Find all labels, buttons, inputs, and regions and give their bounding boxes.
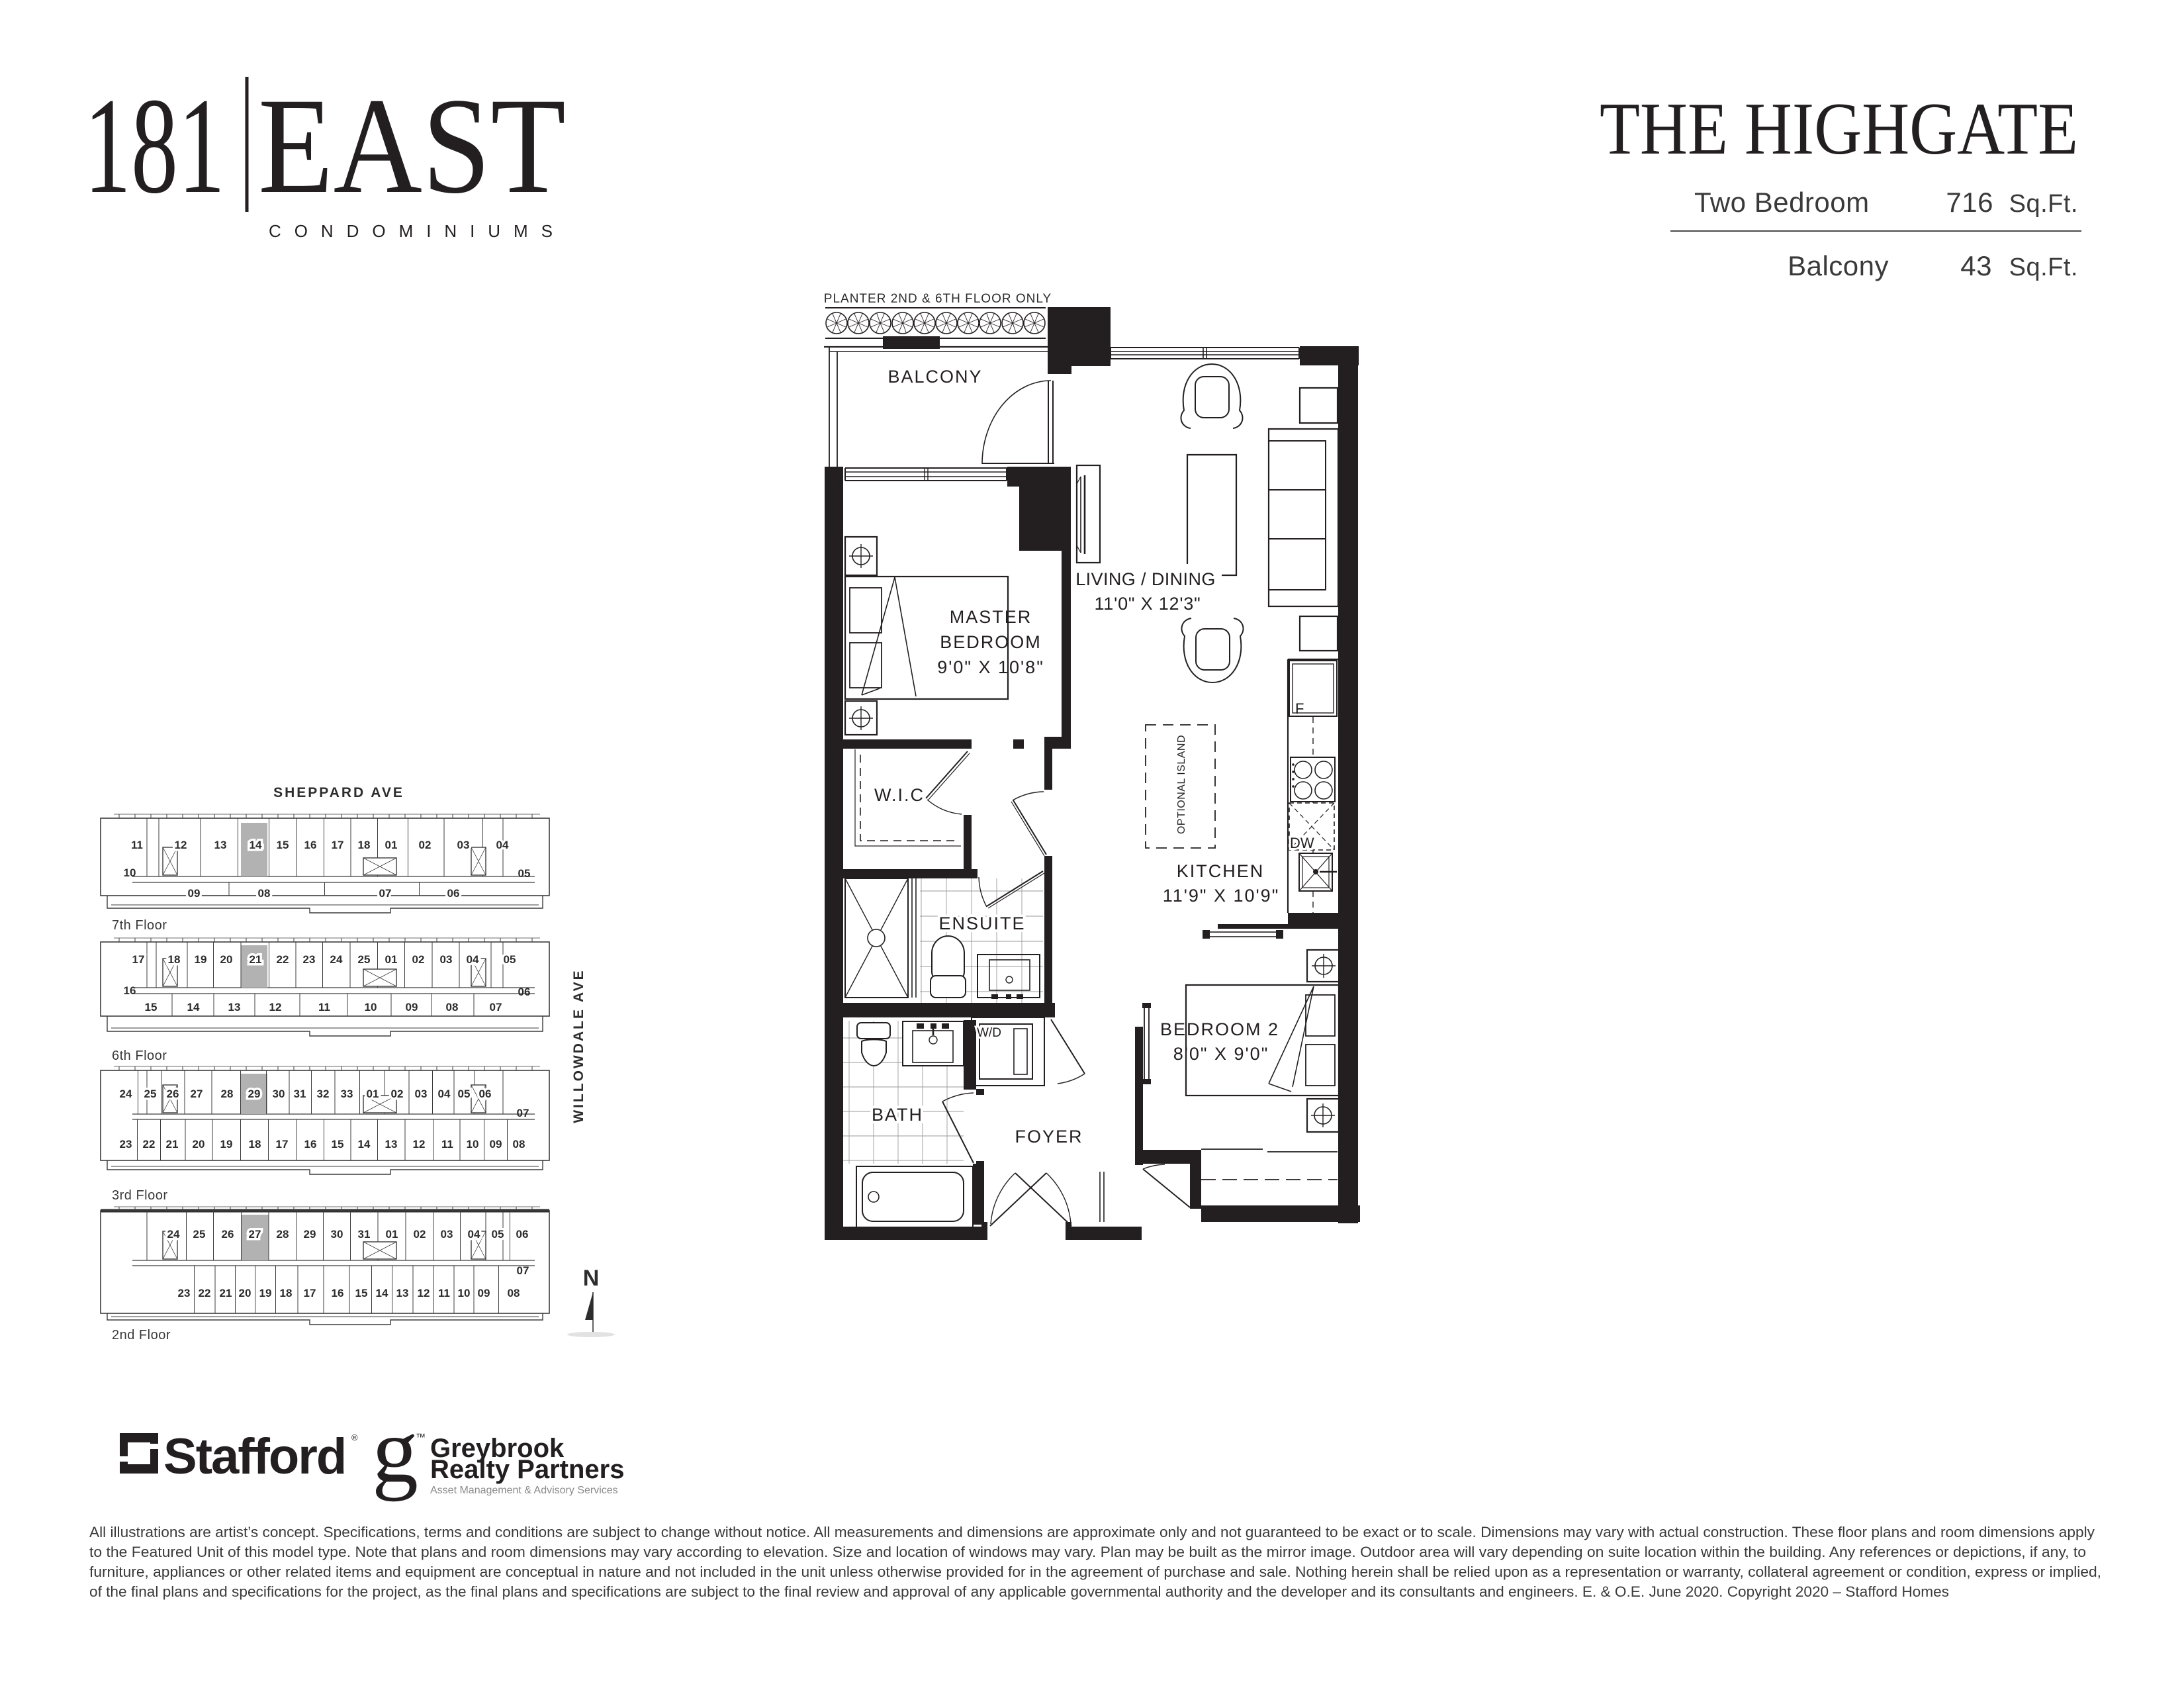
svg-text:32: 32 (317, 1088, 330, 1100)
svg-text:20: 20 (239, 1287, 251, 1299)
svg-text:23: 23 (120, 1138, 132, 1150)
svg-text:to the Featured Unit of this m: to the Featured Unit of this model type.… (89, 1544, 2086, 1560)
svg-text:6th Floor: 6th Floor (112, 1049, 167, 1063)
svg-text:23: 23 (178, 1287, 191, 1299)
svg-text:13: 13 (385, 1138, 398, 1150)
svg-text:SHEPPARD AVE: SHEPPARD AVE (273, 785, 404, 800)
svg-text:21: 21 (220, 1287, 232, 1299)
svg-text:07: 07 (517, 1107, 529, 1119)
svg-text:Sq.Ft.: Sq.Ft. (2009, 190, 2078, 218)
svg-text:28: 28 (277, 1228, 289, 1241)
svg-text:04: 04 (438, 1088, 451, 1100)
svg-text:23: 23 (303, 953, 316, 966)
svg-text:10: 10 (467, 1138, 479, 1150)
svg-text:05: 05 (458, 1088, 471, 1100)
svg-text:W.I.C: W.I.C (874, 785, 925, 805)
svg-text:14: 14 (376, 1287, 388, 1299)
svg-text:24: 24 (330, 953, 343, 966)
svg-text:26: 26 (167, 1088, 179, 1100)
svg-text:02: 02 (412, 953, 425, 966)
svg-text:Stafford: Stafford (163, 1429, 345, 1485)
svg-text:25: 25 (144, 1088, 157, 1100)
svg-text:17: 17 (332, 839, 344, 851)
svg-text:10: 10 (124, 867, 136, 879)
svg-text:10: 10 (458, 1287, 471, 1299)
svg-text:LIVING / DINING: LIVING / DINING (1075, 569, 1216, 589)
svg-text:08: 08 (513, 1138, 525, 1150)
svg-text:3rd Floor: 3rd Floor (112, 1188, 168, 1203)
svg-text:43: 43 (1960, 250, 1992, 281)
svg-text:08: 08 (446, 1001, 459, 1013)
svg-text:11: 11 (131, 839, 143, 851)
svg-text:®: ® (351, 1432, 358, 1442)
svg-text:01: 01 (386, 1228, 398, 1241)
svg-text:24: 24 (120, 1088, 132, 1100)
svg-text:™: ™ (416, 1432, 426, 1443)
svg-text:All illustrations are artist’s: All illustrations are artist’s concept. … (89, 1524, 2095, 1540)
svg-text:15: 15 (277, 839, 289, 851)
svg-text:THE HIGHGATE: THE HIGHGATE (1600, 88, 2078, 170)
svg-text:8'0" X 9'0": 8'0" X 9'0" (1173, 1044, 1269, 1064)
svg-text:N: N (583, 1266, 600, 1291)
svg-text:BATH: BATH (872, 1105, 923, 1125)
svg-text:16: 16 (332, 1287, 344, 1299)
svg-text:BEDROOM: BEDROOM (940, 632, 1042, 652)
svg-text:07: 07 (517, 1264, 529, 1277)
svg-text:14: 14 (250, 839, 262, 851)
svg-text:2nd Floor: 2nd Floor (112, 1328, 171, 1342)
svg-text:21: 21 (250, 953, 262, 966)
svg-text:12: 12 (413, 1138, 426, 1150)
svg-text:02: 02 (419, 839, 432, 851)
svg-text:BEDROOM 2: BEDROOM 2 (1160, 1019, 1279, 1039)
svg-text:18: 18 (280, 1287, 293, 1299)
svg-text:11: 11 (441, 1138, 453, 1150)
svg-text:06: 06 (479, 1088, 492, 1100)
svg-text:15: 15 (145, 1001, 158, 1013)
svg-text:11'0" X 12'3": 11'0" X 12'3" (1095, 594, 1201, 614)
svg-text:01: 01 (385, 953, 398, 966)
svg-text:13: 13 (228, 1001, 241, 1013)
svg-text:12: 12 (269, 1001, 282, 1013)
svg-text:17: 17 (304, 1287, 316, 1299)
svg-text:Asset Management & Advisory Se: Asset Management & Advisory Services (430, 1485, 618, 1496)
svg-text:F: F (1295, 700, 1304, 717)
svg-text:13: 13 (214, 839, 227, 851)
svg-text:19: 19 (220, 1138, 233, 1150)
svg-text:09: 09 (406, 1001, 418, 1013)
svg-text:30: 30 (331, 1228, 343, 1241)
svg-text:BALCONY: BALCONY (887, 367, 982, 387)
svg-text:03: 03 (415, 1088, 428, 1100)
svg-text:06: 06 (518, 986, 531, 998)
svg-text:31: 31 (358, 1228, 371, 1241)
svg-text:18: 18 (249, 1138, 261, 1150)
svg-text:26: 26 (222, 1228, 234, 1241)
svg-text:FOYER: FOYER (1015, 1127, 1083, 1147)
svg-text:15: 15 (332, 1138, 344, 1150)
svg-text:02: 02 (414, 1228, 426, 1241)
svg-text:22: 22 (199, 1287, 211, 1299)
svg-text:25: 25 (358, 953, 371, 966)
svg-text:11'9" X 10'9": 11'9" X 10'9" (1163, 886, 1280, 906)
svg-text:25: 25 (193, 1228, 206, 1241)
svg-text:30: 30 (273, 1088, 285, 1100)
svg-text:17: 17 (132, 953, 145, 966)
svg-text:716: 716 (1946, 187, 1993, 218)
svg-text:OPTIONAL ISLAND: OPTIONAL ISLAND (1176, 735, 1187, 834)
svg-text:05: 05 (492, 1228, 504, 1241)
svg-text:03: 03 (457, 839, 470, 851)
svg-text:07: 07 (379, 887, 392, 900)
svg-text:16: 16 (304, 839, 317, 851)
svg-text:20: 20 (220, 953, 233, 966)
svg-text:CONDOMINIUMS: CONDOMINIUMS (269, 221, 565, 241)
svg-text:W/D: W/D (977, 1026, 1001, 1040)
svg-text:19: 19 (259, 1287, 272, 1299)
svg-text:10: 10 (365, 1001, 377, 1013)
svg-text:01: 01 (367, 1088, 379, 1100)
svg-text:04: 04 (467, 953, 479, 966)
svg-text:08: 08 (258, 887, 271, 900)
svg-text:181: 181 (84, 70, 225, 222)
svg-text:28: 28 (221, 1088, 234, 1100)
svg-text:ENSUITE: ENSUITE (938, 914, 1025, 933)
svg-text:22: 22 (143, 1138, 156, 1150)
svg-text:07: 07 (490, 1001, 502, 1013)
svg-text:11: 11 (438, 1287, 450, 1299)
svg-text:04: 04 (496, 839, 509, 851)
svg-text:01: 01 (385, 839, 398, 851)
svg-text:06: 06 (516, 1228, 529, 1241)
svg-text:furniture, appliances or other: furniture, appliances or other related i… (89, 1564, 2101, 1580)
svg-text:24: 24 (167, 1228, 180, 1241)
svg-text:13: 13 (396, 1287, 409, 1299)
svg-text:Two Bedroom: Two Bedroom (1694, 187, 1870, 218)
svg-text:PLANTER 2ND & 6TH FLOOR ONLY: PLANTER 2ND & 6TH FLOOR ONLY (824, 292, 1052, 306)
svg-text:DW: DW (1290, 835, 1314, 851)
svg-text:18: 18 (168, 953, 181, 966)
svg-text:22: 22 (277, 953, 289, 966)
svg-text:MASTER: MASTER (950, 607, 1032, 627)
svg-text:05: 05 (504, 953, 516, 966)
svg-text:11: 11 (318, 1001, 330, 1013)
svg-text:19: 19 (195, 953, 207, 966)
svg-text:08: 08 (508, 1287, 520, 1299)
svg-text:33: 33 (341, 1088, 353, 1100)
svg-text:14: 14 (187, 1001, 200, 1013)
svg-text:29: 29 (248, 1088, 261, 1100)
svg-text:Sq.Ft.: Sq.Ft. (2009, 254, 2078, 281)
svg-text:14: 14 (358, 1138, 371, 1150)
svg-text:17: 17 (276, 1138, 289, 1150)
svg-text:EAST: EAST (258, 70, 566, 222)
svg-text:03: 03 (441, 1228, 453, 1241)
svg-text:Realty Partners: Realty Partners (430, 1455, 624, 1484)
svg-text:12: 12 (175, 839, 187, 851)
svg-text:21: 21 (166, 1138, 179, 1150)
svg-text:27: 27 (249, 1228, 261, 1241)
svg-text:9'0" X 10'8": 9'0" X 10'8" (937, 657, 1044, 677)
svg-text:12: 12 (418, 1287, 430, 1299)
svg-text:15: 15 (355, 1287, 368, 1299)
svg-text:03: 03 (440, 953, 453, 966)
svg-text:g: g (372, 1399, 418, 1502)
svg-text:20: 20 (193, 1138, 205, 1150)
svg-text:31: 31 (294, 1088, 306, 1100)
svg-text:18: 18 (358, 839, 371, 851)
svg-text:02: 02 (391, 1088, 404, 1100)
svg-text:04: 04 (468, 1228, 480, 1241)
svg-text:09: 09 (490, 1138, 502, 1150)
svg-text:27: 27 (191, 1088, 203, 1100)
svg-text:of the final plans and specifi: of the final plans and specifications fo… (89, 1583, 1949, 1600)
svg-text:09: 09 (188, 887, 201, 900)
svg-text:09: 09 (478, 1287, 490, 1299)
svg-text:16: 16 (304, 1138, 317, 1150)
svg-text:06: 06 (447, 887, 460, 900)
svg-text:WILLOWDALE AVE: WILLOWDALE AVE (571, 968, 586, 1123)
svg-text:7th Floor: 7th Floor (112, 918, 167, 933)
svg-text:05: 05 (518, 867, 531, 880)
svg-text:Balcony: Balcony (1788, 250, 1889, 281)
svg-text:16: 16 (124, 984, 136, 997)
svg-text:29: 29 (304, 1228, 316, 1241)
svg-text:KITCHEN: KITCHEN (1177, 861, 1265, 881)
